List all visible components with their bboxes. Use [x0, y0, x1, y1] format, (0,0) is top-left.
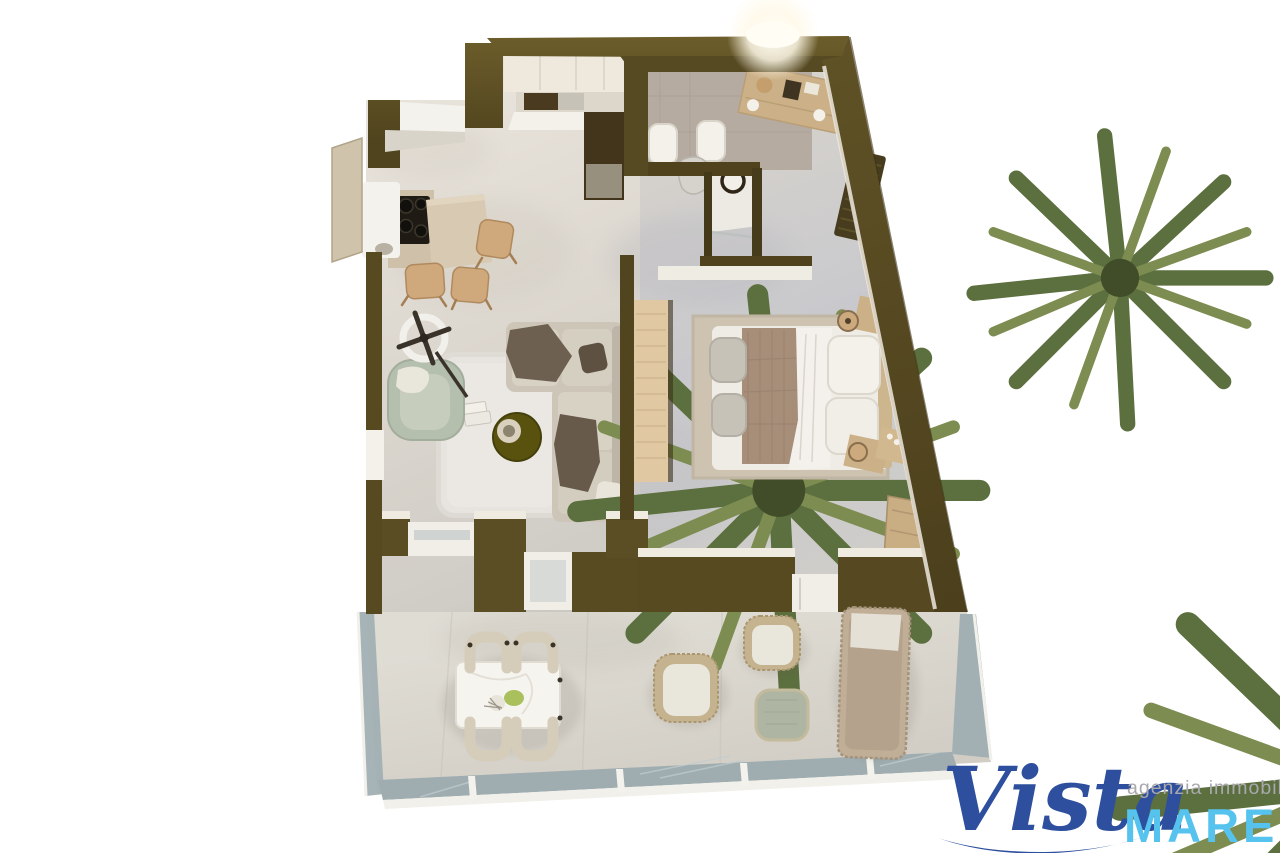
toilet [649, 124, 677, 164]
outer-wall-pier [465, 43, 503, 128]
brand-logo: Vista agenzia immobiliare MARE [938, 747, 1280, 853]
bed-blanket [742, 328, 800, 464]
left-window [366, 430, 384, 480]
brand-caps: MARE [1124, 799, 1278, 852]
ottoman [710, 338, 746, 382]
wicker-armchair [744, 616, 800, 670]
salad-bowl [504, 690, 524, 706]
shower-wall [704, 172, 712, 264]
counter-inset [558, 93, 584, 110]
open-window-panel [332, 138, 362, 262]
armchair [388, 360, 464, 440]
wall-pier [572, 552, 640, 612]
bed-pillow [828, 336, 880, 394]
shower-wall [752, 168, 762, 262]
cabinet-front [508, 112, 590, 130]
counter-inset [524, 93, 558, 110]
kitchen-window-sill [400, 102, 465, 132]
floorplan-page: Vista agenzia immobiliare MARE [0, 0, 1280, 853]
sun-lounger [837, 607, 910, 759]
tall-cabinet [584, 112, 624, 200]
wicker-armchair [654, 654, 718, 722]
lounger-pillow [850, 613, 901, 651]
wardrobe [634, 300, 673, 482]
partition-bathroom [630, 162, 760, 176]
brand-tagline: agenzia immobiliare [1127, 777, 1280, 799]
partition-living-bedroom [620, 255, 634, 520]
floorplan-render: Vista agenzia immobiliare MARE [0, 0, 1280, 853]
bidet [697, 121, 725, 161]
ottoman [712, 394, 746, 436]
outdoor-pouf [756, 690, 808, 740]
bath-threshold [658, 266, 812, 280]
wall-pier [638, 556, 795, 612]
shower-wall [700, 256, 812, 266]
round-coffee-table [493, 413, 541, 461]
table-lamp [849, 443, 867, 461]
console-plant [974, 136, 1266, 424]
wall-pier [474, 518, 526, 612]
